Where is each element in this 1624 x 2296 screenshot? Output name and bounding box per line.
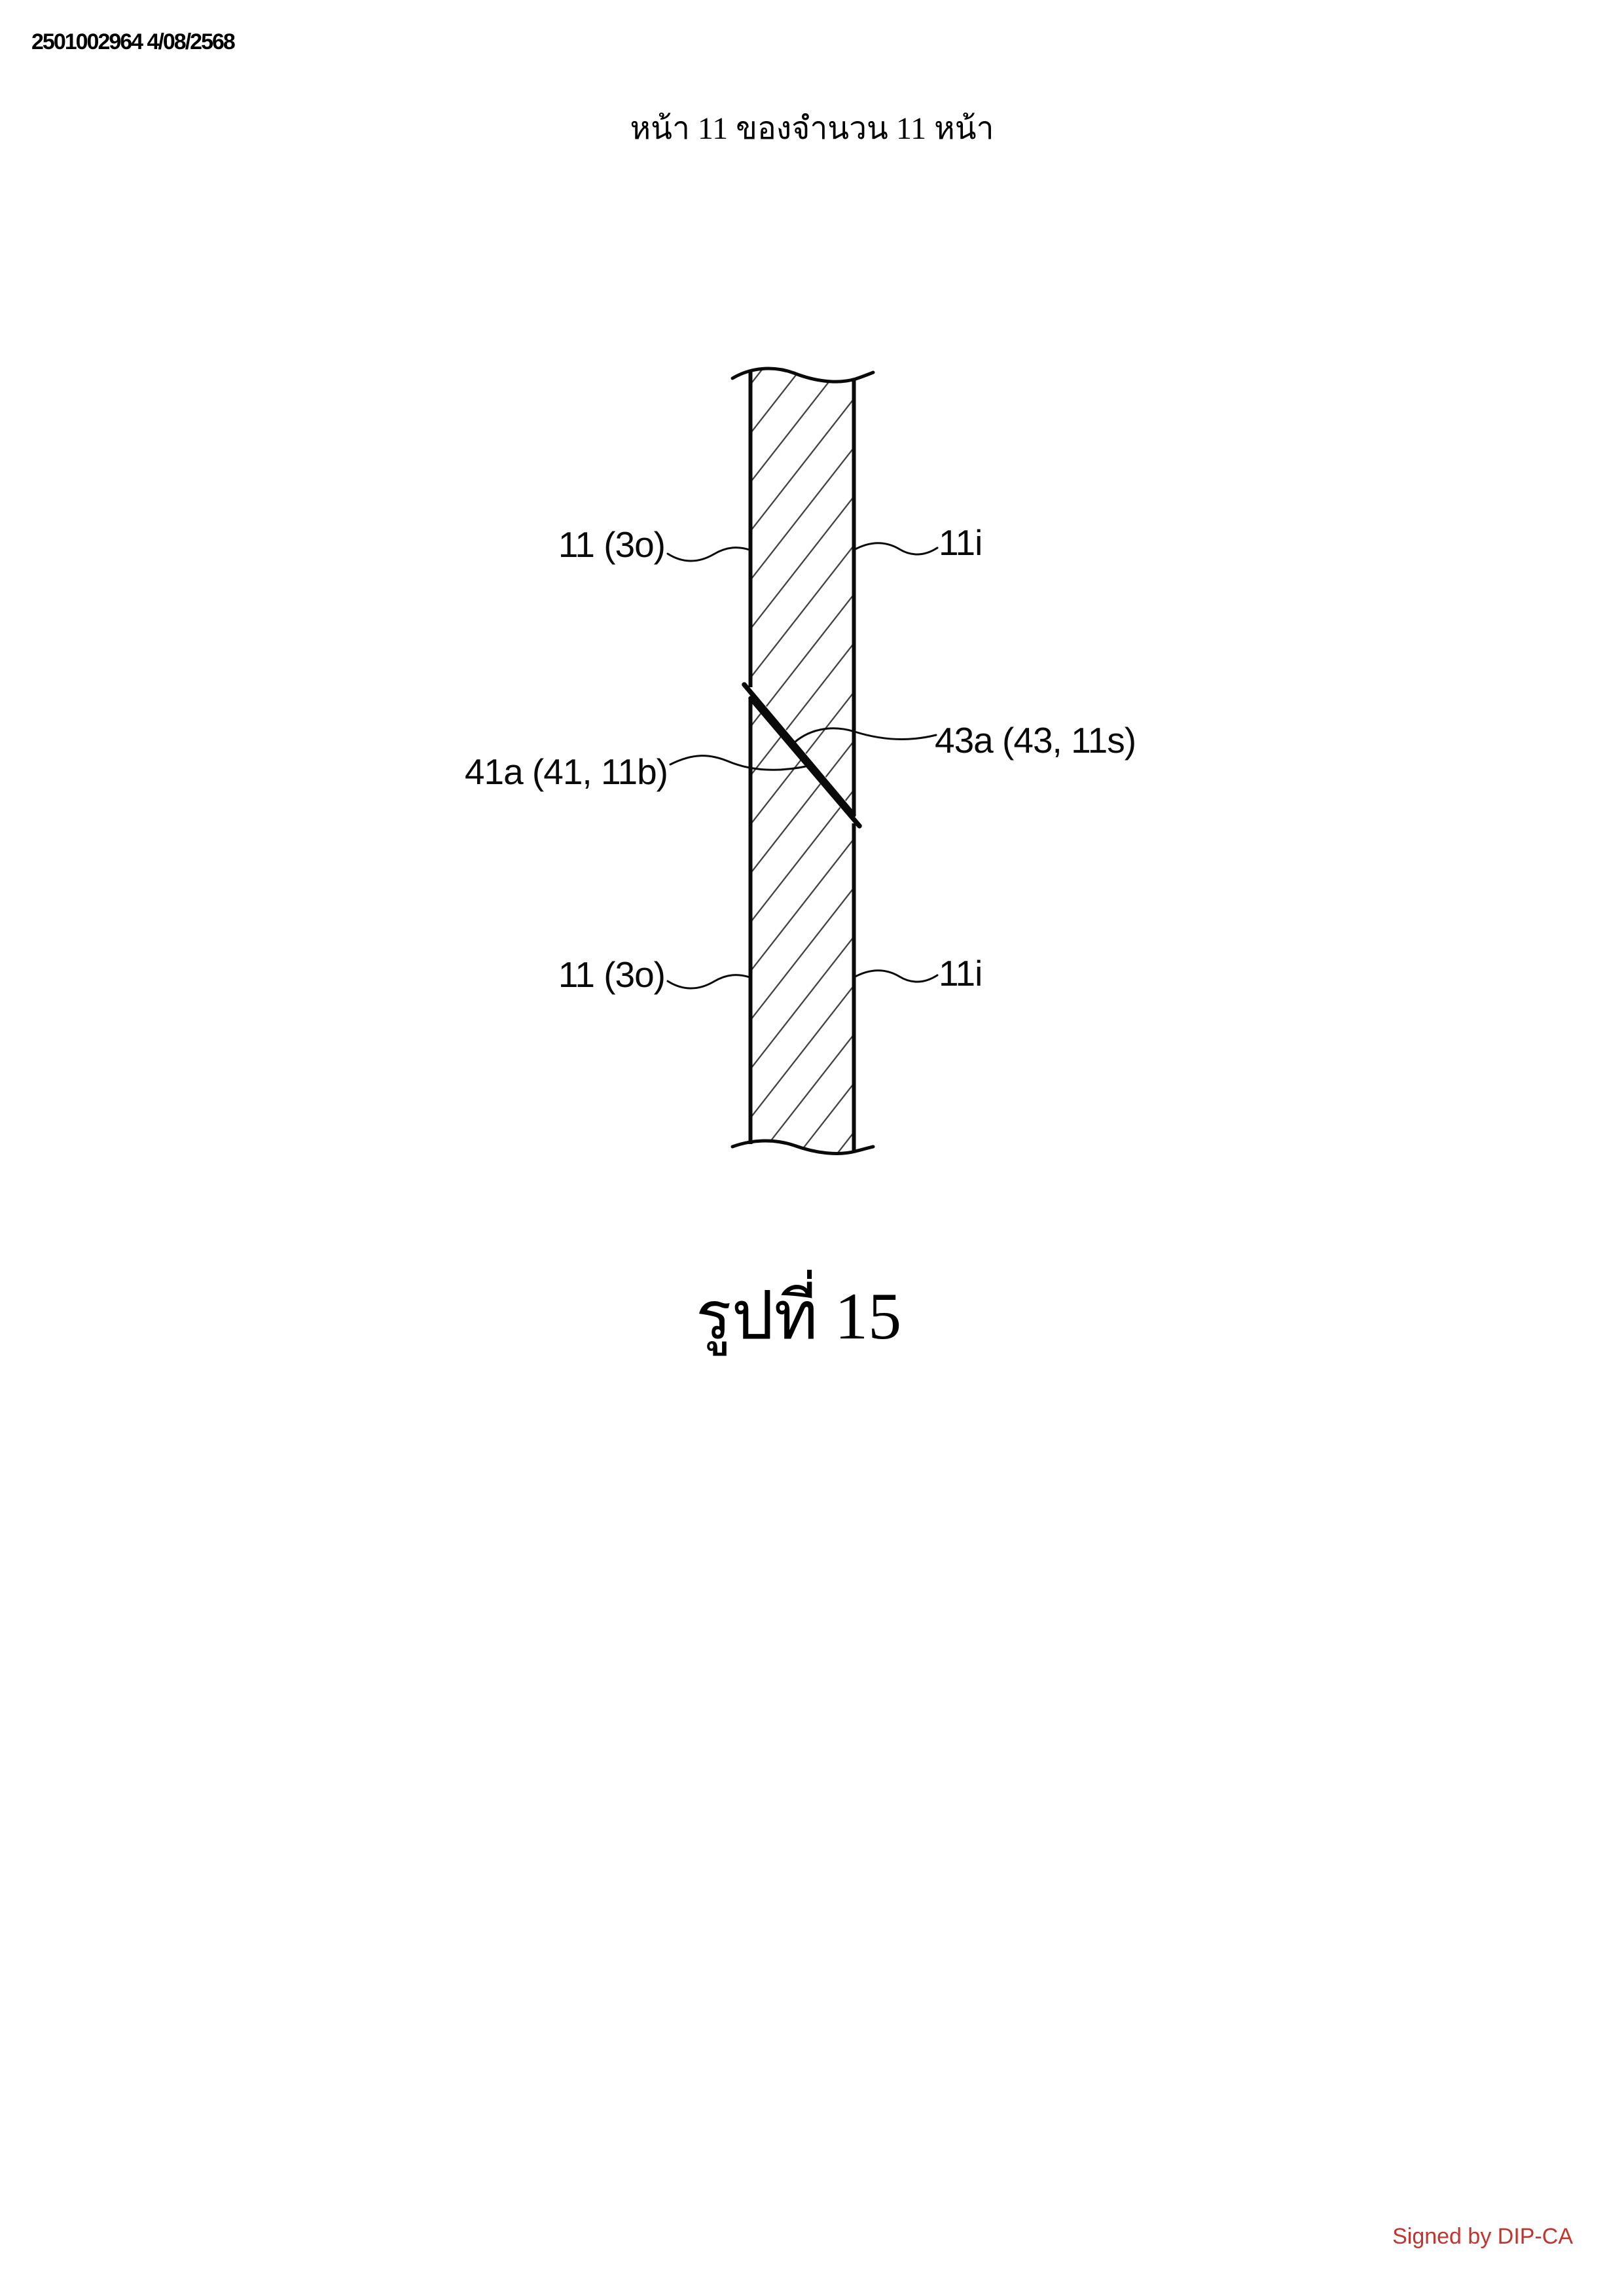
signature-text: Signed by DIP-CA	[1392, 2224, 1573, 2250]
label-11i-top: 11i	[939, 522, 982, 563]
label-11i-bottom: 11i	[939, 953, 982, 994]
leader-bottom-right	[853, 971, 937, 982]
figure-caption: รูปที่ 15	[0, 1262, 1597, 1368]
label-11-3o-top: 11 (3o)	[558, 524, 665, 565]
label-43a: 43a (43, 11s)	[935, 720, 1136, 761]
hatched-bar	[732, 364, 873, 1157]
patent-page: 2501002964 4/08/2568 หน้า 11 ของจำนวน 11…	[0, 0, 1624, 2296]
leader-top-left	[668, 548, 751, 561]
label-41a: 41a (41, 11b)	[465, 751, 668, 792]
leader-top-right	[853, 543, 937, 554]
figure-15-drawing: 11 (3o) 11i 41a (41, 11b) 43a (43, 11s) …	[0, 0, 1624, 2296]
leader-bottom-left	[668, 975, 751, 988]
label-11-3o-bottom: 11 (3o)	[558, 954, 665, 995]
